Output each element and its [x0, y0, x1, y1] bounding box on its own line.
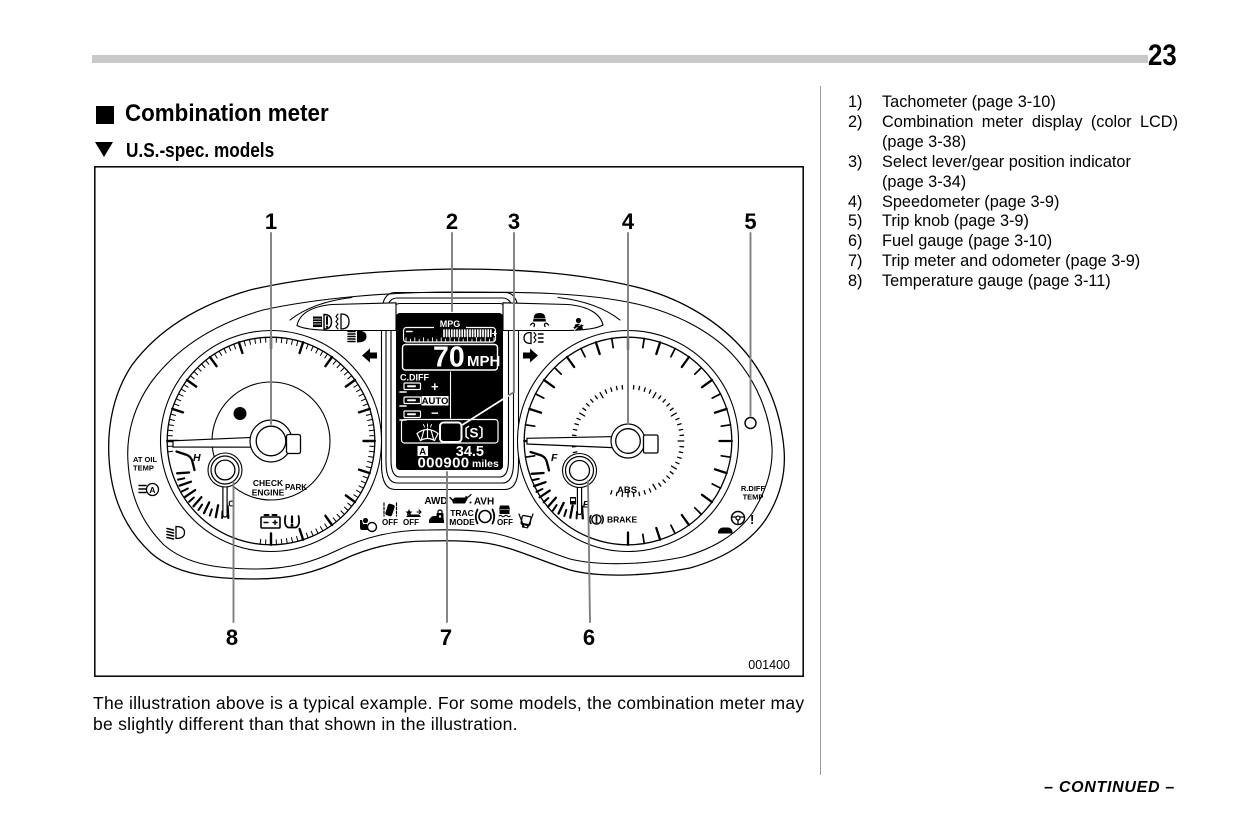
svg-text:1: 1 [265, 209, 277, 234]
svg-text:AVH: AVH [474, 497, 494, 508]
svg-text:AWD: AWD [424, 496, 447, 507]
svg-text:MODE: MODE [449, 517, 475, 527]
svg-text:CHECK: CHECK [253, 478, 284, 488]
svg-text:000900: 000900 [418, 455, 470, 472]
svg-text:TEMP: TEMP [743, 493, 764, 502]
svg-text:ENGINE: ENGINE [252, 488, 285, 498]
svg-text:70: 70 [433, 342, 465, 374]
svg-text:6: 6 [583, 625, 595, 650]
svg-text:OFF: OFF [497, 518, 513, 527]
svg-text:+: + [492, 329, 497, 339]
svg-text:MPH: MPH [467, 353, 500, 370]
svg-text:BRAKE: BRAKE [607, 515, 638, 525]
svg-text:OFF: OFF [382, 518, 398, 527]
svg-text:5: 5 [744, 209, 756, 234]
svg-text:!: ! [750, 512, 754, 527]
svg-text:7: 7 [440, 625, 452, 650]
svg-text:H: H [193, 452, 201, 464]
svg-text:MPG: MPG [440, 319, 461, 329]
svg-text:ABS: ABS [617, 485, 637, 496]
svg-text:+: + [431, 379, 439, 394]
svg-text:miles: miles [472, 458, 499, 470]
svg-text:4: 4 [622, 209, 635, 234]
svg-text:2: 2 [446, 209, 458, 234]
svg-text:F: F [551, 452, 558, 464]
svg-text:3: 3 [508, 209, 520, 234]
svg-text:〔S〕: 〔S〕 [456, 426, 492, 441]
svg-text:OFF: OFF [403, 518, 419, 527]
svg-text:C.DIFF: C.DIFF [400, 373, 429, 383]
svg-text:TEMP: TEMP [133, 464, 154, 473]
svg-text:8: 8 [226, 625, 238, 650]
svg-text:−: − [431, 406, 439, 421]
svg-text:001400: 001400 [748, 658, 790, 672]
svg-text:A: A [149, 485, 155, 495]
svg-text:PARK: PARK [285, 483, 307, 492]
